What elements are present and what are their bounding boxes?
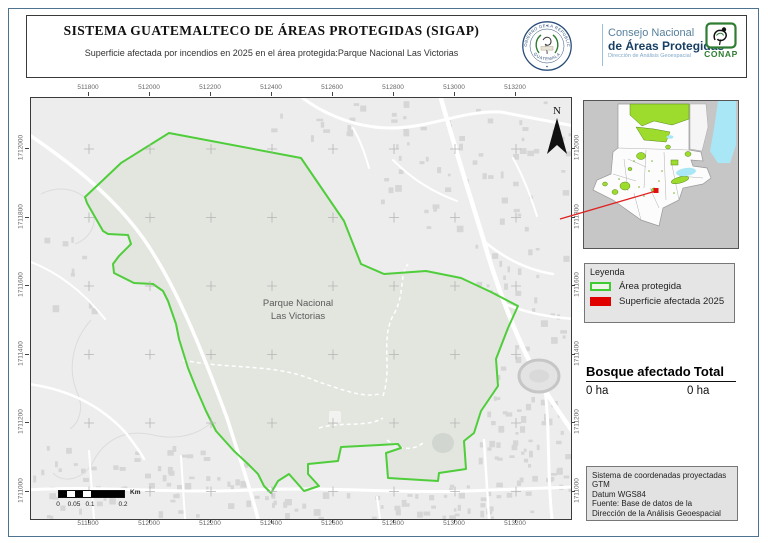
tick-mark: [271, 519, 272, 523]
stats-col1-value: 0 ha: [586, 385, 687, 397]
legend-item-protected: Área protegida: [590, 281, 729, 292]
lake-peten-itza: [667, 135, 674, 139]
tick-mark: [25, 354, 29, 355]
government-seal-icon: GOBIERNO DE LA REPÚBLICA GUATEMALA: [521, 20, 573, 72]
y-tick-label-left: 1711400: [18, 333, 25, 373]
tick-mark: [571, 217, 575, 218]
legend: Leyenda Área protegida Superficie afecta…: [584, 263, 735, 323]
y-tick-label-left: 1711200: [18, 402, 25, 442]
y-tick-label-left: 1711600: [18, 265, 25, 305]
tick-mark: [571, 491, 575, 492]
tick-mark: [571, 285, 575, 286]
legend-label: Superficie afectada 2025: [619, 296, 724, 307]
field: [329, 411, 341, 423]
tick-mark: [332, 519, 333, 523]
legend-title: Leyenda: [590, 267, 729, 277]
header: SISTEMA GUATEMALTECO DE ÁREAS PROTEGIDAS…: [26, 15, 747, 78]
scale-unit-label: Km: [130, 489, 140, 496]
info-line: GTM: [592, 480, 732, 489]
pond: [432, 433, 454, 453]
tick-mark: [88, 519, 89, 523]
x-tick-label-top: 512200: [195, 84, 225, 91]
y-tick-label-left: 1711000: [18, 470, 25, 510]
x-tick-label-top: 512600: [317, 84, 347, 91]
north-label: N: [553, 105, 561, 117]
north-arrow-icon: N: [544, 100, 570, 158]
stats-block: Bosque afectado Total 0 ha 0 ha: [586, 364, 736, 397]
scale-label-01: 0.1: [80, 501, 100, 508]
x-tick-label-top: 512400: [256, 84, 286, 91]
scale-bar: 0 0.05 0.1 0.2 Km: [50, 486, 160, 512]
logo-divider: [602, 24, 603, 66]
x-tick-label-top: 512000: [134, 84, 164, 91]
affected-area-swatch: [590, 297, 611, 306]
legend-item-affected: Superficie afectada 2025: [590, 296, 729, 307]
stats-col1-header: Bosque afectado: [586, 364, 691, 379]
page-subtitle: Superficie afectada por incendios en 202…: [47, 48, 496, 58]
y-tick-label-left: 1712000: [18, 128, 25, 168]
info-line: Sistema de coordenadas proyectadas: [592, 471, 732, 480]
org-name-line1: Consejo Nacional: [608, 27, 694, 39]
tick-mark: [393, 92, 394, 96]
info-line: Dirección de la Análisis Geoespacial: [592, 509, 732, 518]
legend-label: Área protegida: [619, 281, 681, 292]
tick-mark: [454, 519, 455, 523]
info-line: Fuente: Base de datos de la: [592, 499, 732, 508]
tick-mark: [149, 92, 150, 96]
tick-mark: [515, 519, 516, 523]
park-label-line2: Las Victorias: [271, 311, 325, 322]
x-tick-label-top: 513200: [500, 84, 530, 91]
stats-col2-header: Total: [694, 364, 724, 379]
tick-mark: [25, 422, 29, 423]
tick-mark: [149, 519, 150, 523]
x-tick-label-top: 513000: [439, 84, 469, 91]
coordinate-system-info: Sistema de coordenadas proyectadas GTM D…: [586, 466, 738, 521]
tick-mark: [25, 217, 29, 218]
scale-bar-graphic: [58, 490, 125, 498]
inset-map: [583, 100, 739, 249]
tick-mark: [25, 285, 29, 286]
tick-mark: [515, 92, 516, 96]
y-tick-label-left: 1711800: [18, 196, 25, 236]
org-department: Dirección de Análisis Geoespacial: [608, 53, 691, 59]
tick-mark: [210, 519, 211, 523]
tick-mark: [571, 148, 575, 149]
tick-mark: [332, 92, 333, 96]
tick-mark: [25, 148, 29, 149]
tick-mark: [25, 491, 29, 492]
park-label-line1: Parque Nacional: [263, 298, 333, 309]
protected-area-swatch: [590, 282, 611, 291]
page-title: SISTEMA GUATEMALTECO DE ÁREAS PROTEGIDAS…: [47, 23, 496, 39]
scale-label-02: 0.2: [113, 501, 133, 508]
x-tick-label-top: 512800: [378, 84, 408, 91]
tick-mark: [571, 422, 575, 423]
tick-mark: [88, 92, 89, 96]
x-tick-label-top: 511800: [73, 84, 103, 91]
basemap: Parque Nacional Las Victorias: [31, 98, 571, 519]
tick-mark: [271, 92, 272, 96]
tick-mark: [571, 354, 575, 355]
main-map: Parque Nacional Las Victorias: [30, 97, 572, 520]
conap-label: CONAP: [693, 49, 749, 59]
tick-mark: [454, 92, 455, 96]
tick-mark: [393, 519, 394, 523]
info-line: Datum WGS84: [592, 490, 732, 499]
stats-col2-value: 0 ha: [687, 385, 709, 397]
conap-logo-icon: [705, 22, 737, 49]
tick-mark: [210, 92, 211, 96]
